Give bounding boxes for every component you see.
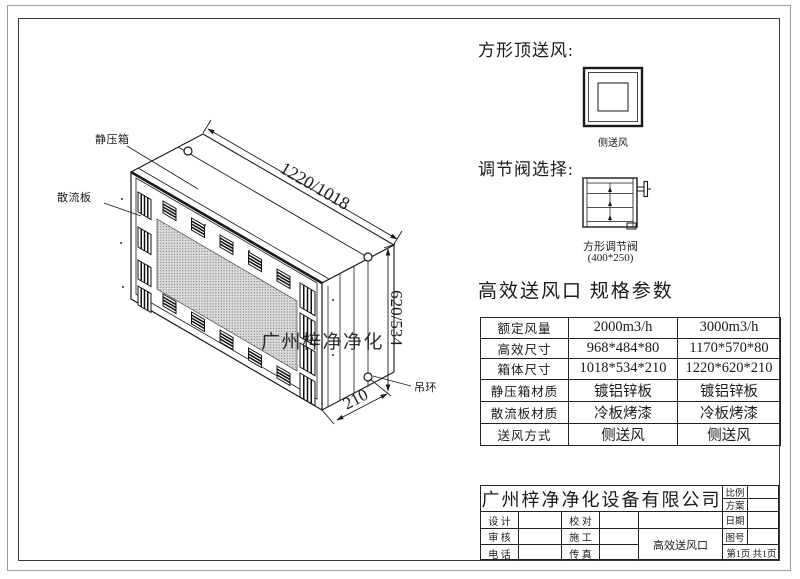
design-label: 设 计 [481,512,519,529]
dimension-height-text: 620/534 [387,290,406,346]
audit-value [519,529,562,545]
spec-label: 静压箱材质 [481,379,569,401]
spec-label: 箱体尺寸 [481,359,569,380]
spec-value: 1220*620*210 [678,359,781,380]
spec-value: 冷板烤漆 [569,401,678,423]
proof-value [600,512,639,529]
drawing-no-value [748,529,780,545]
valve-size-caption: (400*250) [568,252,653,264]
construction-label: 施 工 [562,529,600,545]
square-diffuser-caption: 侧送风 [584,134,642,149]
table-row: 高效尺寸 968*484*80 1170*570*80 [481,338,781,359]
table-row: 送风方式 侧送风 侧送风 [481,423,781,445]
construction-value [600,529,639,545]
lifting-ring-icon [364,253,372,261]
static-pressure-box-label: 静压箱 [95,132,130,146]
spec-label: 散流板材质 [481,401,569,423]
valve-heading: 调节阀选择: [478,155,574,180]
audit-label: 审 核 [481,529,519,545]
phone-value [519,545,562,561]
spec-label: 送风方式 [481,423,569,445]
diffuser-plate-label: 散流板 [57,190,92,204]
spec-value: 3000m3/h [678,318,781,339]
leader-lifting-ring [373,376,411,386]
date-label: 日期 [723,512,748,529]
plan-label: 方案 [723,499,748,512]
watermark-text: 广州梓净净化 [261,331,384,353]
fax-label: 传 真 [562,545,600,561]
fax-value [600,545,639,561]
company-name: 广州梓净净化设备有限公司 [481,486,723,512]
lifting-ring-label: 吊环 [414,381,437,394]
valve-handle-icon [637,182,651,197]
page-info: 第1页 共1页 [723,545,780,561]
square-diffuser-diagram [584,68,642,126]
spec-value: 1018*534*210 [569,359,678,380]
title-block: 广州梓净净化设备有限公司比例方案设 计校 对日期审 核施 工高效送风口图号电 话… [480,485,779,560]
spec-value: 镀铝锌板 [678,379,781,401]
spec-label: 高效尺寸 [481,338,569,359]
spec-value: 冷板烤漆 [678,401,781,423]
drawing-no-label: 图号 [723,529,748,545]
design-value [519,512,562,529]
spec-value: 侧送风 [569,423,678,445]
table-row: 静压箱材质 镀铝锌板 镀铝锌板 [481,379,781,401]
scale-label: 比例 [723,486,748,499]
table-row: 箱体尺寸 1018*534*210 1220*620*210 [481,359,781,380]
scale-value [748,486,780,499]
spec-value: 镀铝锌板 [569,379,678,401]
valve-diagram [583,178,651,229]
spec-table-heading: 高效送风口 规格参数 [478,276,674,303]
drawing-title: 高效送风口 [639,529,723,561]
spec-value: 2000m3/h [569,318,678,339]
spec-value: 1170*570*80 [678,338,781,359]
proof-label: 校 对 [562,512,600,529]
top-supply-heading: 方形顶送风: [478,36,574,61]
table-row: 额定风量 2000m3/h 3000m3/h [481,318,781,339]
plan-value [748,499,780,512]
spec-value: 侧送风 [678,423,781,445]
drawing-sheet: 1220/1018 620/534 210 静压箱 散流板 吊环 广州梓净净化 [0,0,800,579]
date-value [748,512,780,529]
spec-label: 额定风量 [481,318,569,339]
spec-table: 额定风量 2000m3/h 3000m3/h 高效尺寸 968*484*80 1… [480,317,781,446]
phone-label: 电 话 [481,545,519,561]
spare-cell [639,512,723,529]
lifting-ring-icon [184,147,192,155]
valve-bracket [627,223,636,229]
spec-value: 968*484*80 [569,338,678,359]
table-row: 散流板材质 冷板烤漆 冷板烤漆 [481,401,781,423]
